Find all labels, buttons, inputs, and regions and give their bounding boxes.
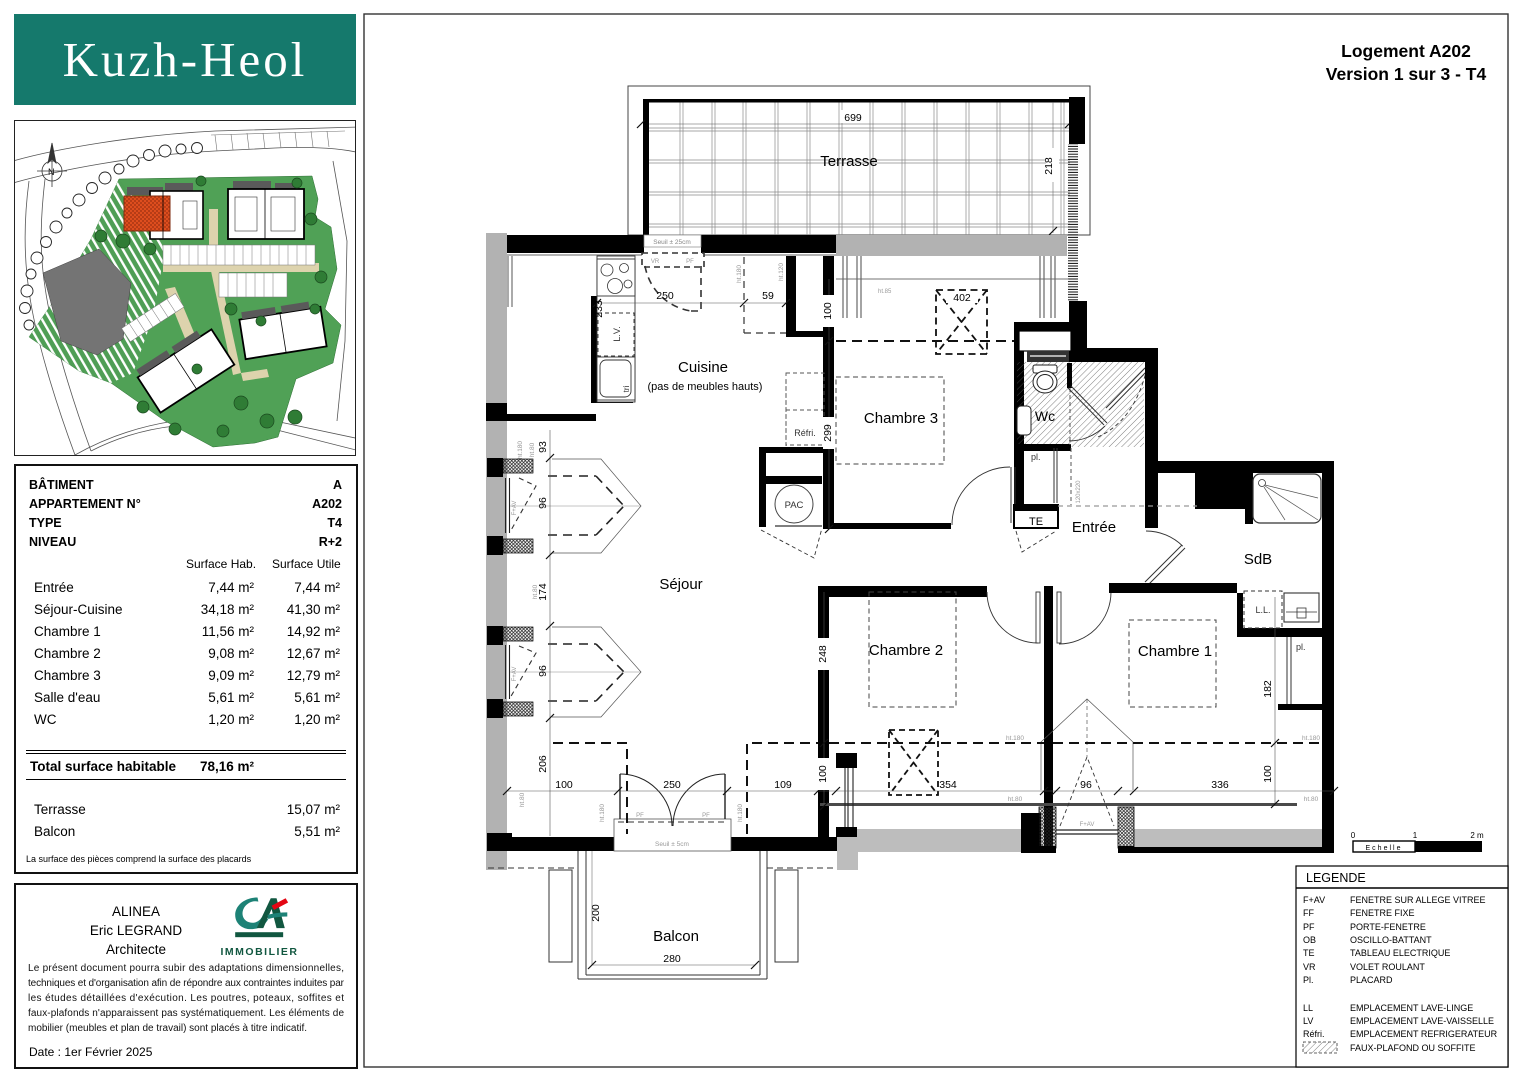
svg-text:100: 100 (555, 779, 573, 791)
svg-text:Terrasse: Terrasse (820, 153, 878, 170)
svg-text:ht.80: ht.80 (532, 584, 539, 599)
svg-text:LL: LL (1303, 1003, 1313, 1013)
svg-text:PAC: PAC (785, 500, 804, 511)
svg-text:ht.180: ht.180 (1302, 735, 1320, 742)
svg-text:PF: PF (1303, 922, 1315, 932)
svg-text:354: 354 (939, 779, 957, 791)
svg-text:96: 96 (537, 497, 549, 509)
svg-text:TE: TE (1029, 516, 1043, 528)
svg-text:ht.180: ht.180 (599, 804, 606, 822)
svg-text:Chambre 2: Chambre 2 (869, 642, 943, 659)
svg-text:402: 402 (953, 292, 971, 304)
svg-text:ht.80: ht.80 (529, 442, 536, 457)
svg-text:Seuil ± 5cm: Seuil ± 5cm (655, 841, 689, 848)
svg-text:L.L.: L.L. (1255, 605, 1270, 615)
svg-text:PLACARD: PLACARD (1350, 975, 1393, 985)
svg-text:Cuisine: Cuisine (678, 359, 728, 376)
svg-text:Chambre 3: Chambre 3 (864, 410, 938, 427)
svg-text:VR: VR (651, 259, 660, 265)
svg-text:TE: TE (1303, 948, 1315, 958)
svg-text:PORTE-FENETRE: PORTE-FENETRE (1350, 922, 1426, 932)
svg-text:182: 182 (1262, 680, 1274, 698)
svg-text:93: 93 (537, 441, 549, 453)
svg-text:FENETRE FIXE: FENETRE FIXE (1350, 908, 1415, 918)
svg-text:pl.: pl. (1296, 642, 1306, 652)
svg-text:2 m: 2 m (1470, 831, 1484, 840)
svg-text:ht.180: ht.180 (737, 804, 744, 822)
svg-text:299: 299 (822, 424, 834, 442)
svg-text:Balcon: Balcon (653, 928, 699, 945)
svg-text:FF: FF (1303, 908, 1314, 918)
svg-text:100: 100 (1262, 765, 1274, 783)
svg-text:ht.80: ht.80 (1304, 796, 1319, 803)
svg-text:ht.180: ht.180 (517, 441, 524, 459)
svg-text:OSCILLO-BATTANT: OSCILLO-BATTANT (1350, 935, 1432, 945)
svg-text:ht.180: ht.180 (1006, 735, 1024, 742)
svg-text:280: 280 (663, 953, 681, 965)
svg-text:EMPLACEMENT LAVE-VAISSELLE: EMPLACEMENT LAVE-VAISSELLE (1350, 1016, 1494, 1026)
svg-text:Wc: Wc (1035, 408, 1055, 424)
svg-text:Seuil ± 25cm: Seuil ± 25cm (653, 239, 691, 246)
svg-text:109: 109 (774, 779, 792, 791)
svg-text:250: 250 (663, 779, 681, 791)
svg-text:206: 206 (537, 755, 549, 773)
svg-text:ht.80: ht.80 (519, 792, 526, 807)
svg-text:FENETRE SUR ALLEGE VITREE: FENETRE SUR ALLEGE VITREE (1350, 895, 1486, 905)
svg-text:F+AV: F+AV (512, 501, 518, 516)
svg-text:EMPLACEMENT LAVE-LINGE: EMPLACEMENT LAVE-LINGE (1350, 1003, 1473, 1013)
svg-text:336: 336 (1211, 779, 1229, 791)
svg-text:699: 699 (844, 112, 862, 124)
svg-text:F+AV: F+AV (512, 667, 518, 682)
svg-text:EMPLACEMENT REFRIGERATEUR: EMPLACEMENT REFRIGERATEUR (1350, 1029, 1498, 1039)
svg-text:Réfri.: Réfri. (794, 428, 816, 438)
svg-text:Echelle: Echelle (1366, 845, 1403, 852)
svg-text:248: 248 (817, 645, 829, 663)
svg-text:tri: tri (622, 385, 631, 392)
svg-text:250: 250 (656, 290, 674, 302)
svg-text:96: 96 (537, 665, 549, 677)
svg-text:L.V.: L.V. (612, 326, 622, 341)
svg-text:VR: VR (1303, 962, 1316, 972)
svg-text:LEGENDE: LEGENDE (1306, 871, 1366, 885)
svg-text:ht.85: ht.85 (878, 289, 892, 295)
svg-text:Pl.: Pl. (1303, 975, 1314, 985)
svg-text:59: 59 (762, 290, 774, 302)
svg-text:TABLEAU ELECTRIQUE: TABLEAU ELECTRIQUE (1350, 948, 1450, 958)
svg-text:Chambre 1: Chambre 1 (1138, 643, 1212, 660)
svg-text:96: 96 (1080, 779, 1092, 791)
svg-text:PF: PF (702, 813, 710, 819)
svg-text:VOLET ROULANT: VOLET ROULANT (1350, 962, 1425, 972)
svg-text:1: 1 (1413, 831, 1418, 840)
svg-text:100: 100 (817, 765, 829, 783)
svg-text:120x220: 120x220 (1076, 480, 1082, 504)
svg-text:Entrée: Entrée (1072, 519, 1116, 536)
svg-text:218: 218 (1043, 157, 1055, 175)
svg-text:LV: LV (1303, 1016, 1313, 1026)
svg-text:ht.80: ht.80 (1008, 796, 1023, 803)
svg-text:PF: PF (636, 813, 644, 819)
svg-text:SdB: SdB (1244, 551, 1272, 568)
svg-text:PF: PF (686, 259, 694, 265)
svg-text:pl.: pl. (1031, 452, 1041, 462)
svg-text:Version 1 sur 3 - T4: Version 1 sur 3 - T4 (1326, 64, 1487, 84)
svg-text:F+AV: F+AV (1080, 822, 1095, 828)
svg-text:0: 0 (1351, 831, 1356, 840)
svg-text:F+AV: F+AV (1303, 895, 1325, 905)
svg-text:233: 233 (593, 300, 605, 318)
svg-text:OB: OB (1303, 935, 1316, 945)
svg-text:Réfri.: Réfri. (1303, 1029, 1325, 1039)
svg-text:Séjour: Séjour (659, 576, 702, 593)
svg-text:ht.180: ht.180 (736, 265, 743, 283)
svg-text:(pas de meubles hauts): (pas de meubles hauts) (648, 381, 763, 393)
svg-text:Logement A202: Logement A202 (1341, 41, 1471, 61)
svg-text:100: 100 (822, 302, 834, 320)
svg-text:ht.120: ht.120 (778, 263, 785, 281)
svg-text:FAUX-PLAFOND OU SOFFITE: FAUX-PLAFOND OU SOFFITE (1350, 1043, 1476, 1053)
